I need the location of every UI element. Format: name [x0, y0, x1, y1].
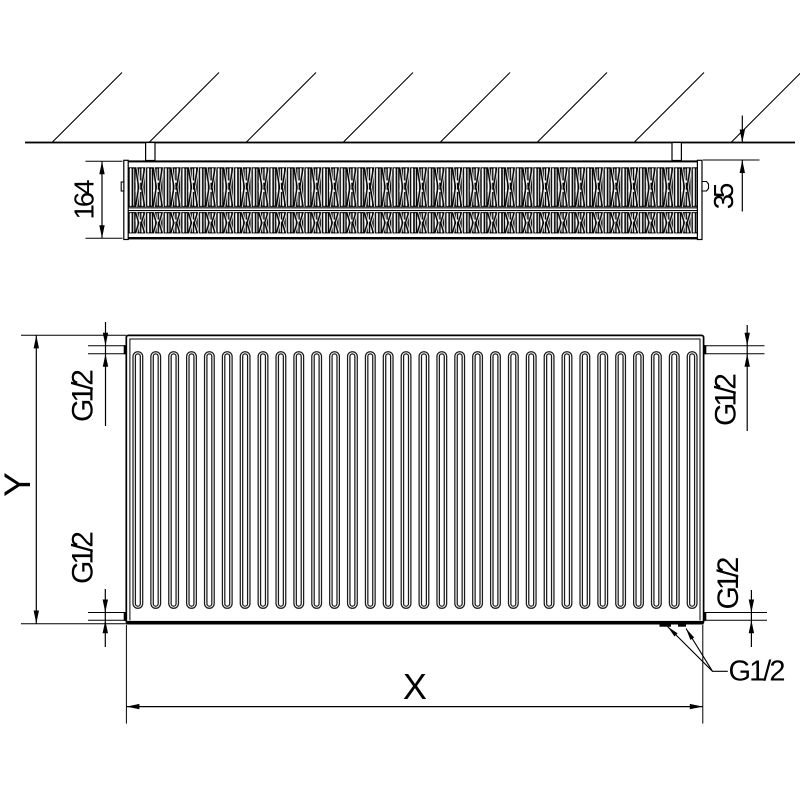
svg-text:G1/2: G1/2 [712, 557, 745, 610]
svg-text:164: 164 [68, 180, 99, 220]
svg-text:G1/2: G1/2 [67, 369, 100, 422]
svg-text:G1/2: G1/2 [67, 531, 100, 584]
svg-text:X: X [403, 666, 427, 707]
svg-text:Y: Y [0, 472, 38, 497]
svg-text:35: 35 [708, 183, 739, 210]
svg-text:G1/2: G1/2 [729, 656, 786, 688]
svg-text:G1/2: G1/2 [710, 373, 743, 426]
